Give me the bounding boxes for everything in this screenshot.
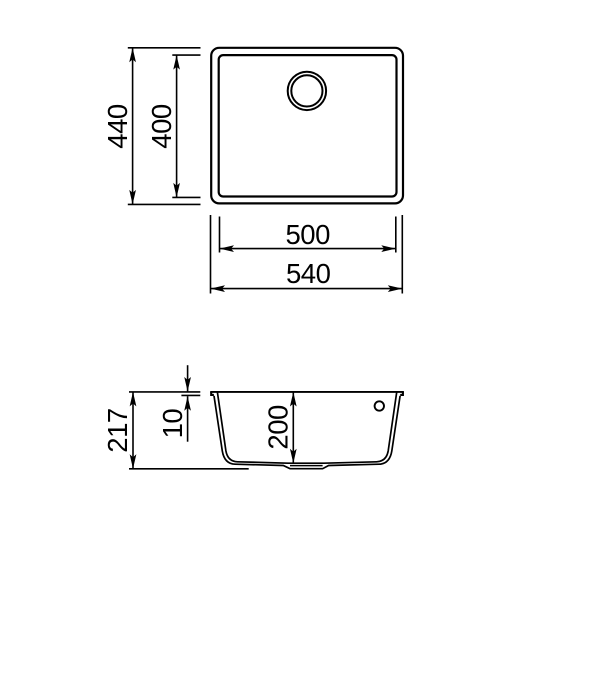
svg-text:217: 217 <box>102 408 133 452</box>
svg-text:10: 10 <box>157 409 188 439</box>
svg-text:500: 500 <box>286 219 331 250</box>
svg-text:200: 200 <box>263 405 294 450</box>
svg-text:540: 540 <box>286 258 331 289</box>
svg-text:400: 400 <box>146 104 177 149</box>
svg-text:440: 440 <box>102 104 133 149</box>
